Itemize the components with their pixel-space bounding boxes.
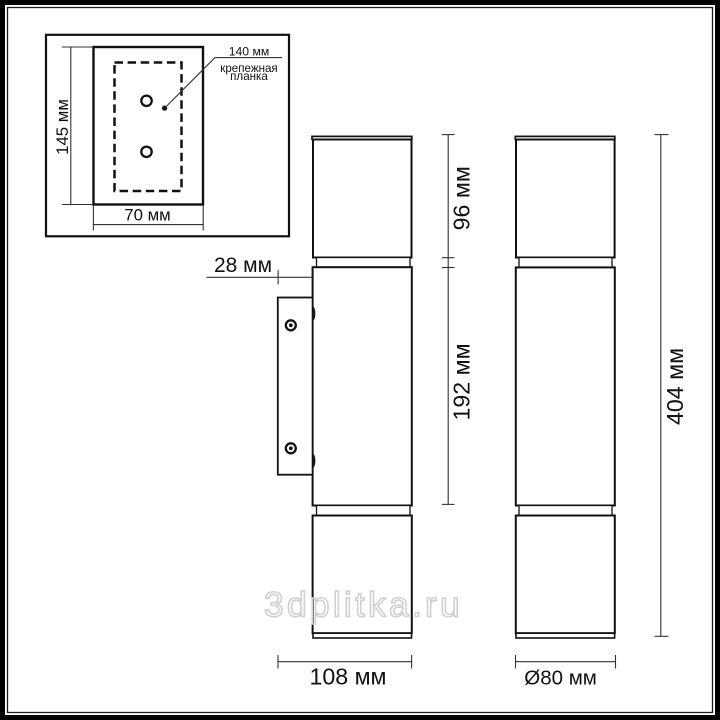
svg-text:28 мм: 28 мм bbox=[214, 254, 272, 277]
svg-text:Ø80 мм: Ø80 мм bbox=[524, 666, 597, 689]
svg-text:108 мм: 108 мм bbox=[309, 664, 386, 690]
svg-text:3dplitka.ru: 3dplitka.ru bbox=[264, 584, 463, 624]
svg-text:140 мм: 140 мм bbox=[229, 45, 269, 59]
svg-text:192 мм: 192 мм bbox=[449, 343, 475, 420]
svg-text:96 мм: 96 мм bbox=[449, 166, 475, 230]
svg-text:70 мм: 70 мм bbox=[124, 206, 170, 225]
svg-text:планка: планка bbox=[230, 70, 268, 83]
svg-text:404 мм: 404 мм bbox=[662, 348, 688, 425]
svg-text:145 мм: 145 мм bbox=[53, 99, 72, 155]
